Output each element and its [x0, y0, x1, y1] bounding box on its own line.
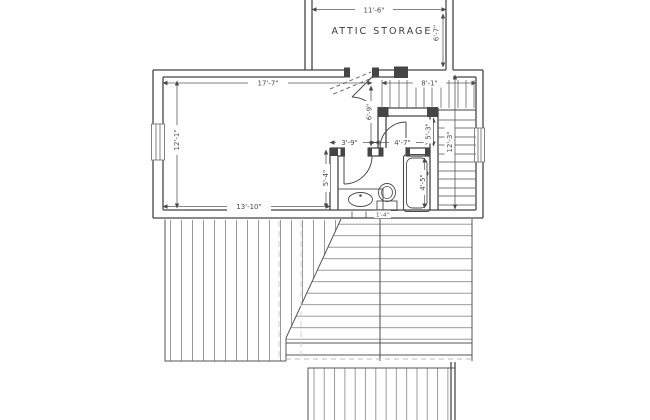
bathroom-door-swing: [344, 156, 372, 184]
toilet: [377, 184, 397, 211]
dim-room-height-label: 12'-1": [173, 129, 181, 150]
dim-hall-depth-label: 12'-3": [446, 131, 454, 152]
dim-bath-width-left-label: 3'-9": [341, 139, 358, 147]
west-window: [152, 124, 165, 160]
north-wall: [153, 70, 483, 77]
windows: [152, 124, 485, 162]
labels: ATTIC STORAGE 11'-6" 6'-7" 17'-7" 12'-1"…: [173, 6, 454, 218]
roof-hatch-lower-strip: [308, 368, 455, 420]
bathroom-fixtures: [338, 155, 430, 218]
stair-lower-run-treads: [438, 120, 476, 205]
dim-toilet-clearance-label: 1'-4": [376, 213, 389, 219]
dim-tub-length-label: 4'-5": [419, 174, 427, 191]
doors: [330, 72, 406, 184]
attic-storage-room-label: ATTIC STORAGE: [332, 26, 433, 37]
dim-bath-width-right-label: 4'-7": [394, 139, 411, 147]
dim-door-to-bath-label: 6'-9": [366, 104, 374, 121]
dim-bath-depth-label: 5'-4": [322, 170, 330, 187]
bathroom-west-wall: [330, 148, 338, 210]
south-wall: [153, 210, 483, 218]
dim-room-width-label: 17'-7": [257, 80, 278, 88]
dim-attic-width-label: 11'-6": [363, 6, 384, 14]
dim-attic-depth-label: 6'-7": [433, 25, 441, 42]
floor-plan-screenshot: ATTIC STORAGE 11'-6" 6'-7" 17'-7" 12'-1"…: [0, 0, 650, 420]
floor-plan-canvas: ATTIC STORAGE 11'-6" 6'-7" 17'-7" 12'-1"…: [0, 0, 650, 420]
main-room-door-leaf: [352, 77, 372, 97]
roof-below-hatching: [165, 219, 472, 420]
dim-hall-width-label: 8'-1": [421, 80, 438, 88]
dim-closet-depth-label: 5'-3": [425, 123, 433, 140]
dim-room-width-bottom-label: 13'-10": [236, 203, 261, 211]
